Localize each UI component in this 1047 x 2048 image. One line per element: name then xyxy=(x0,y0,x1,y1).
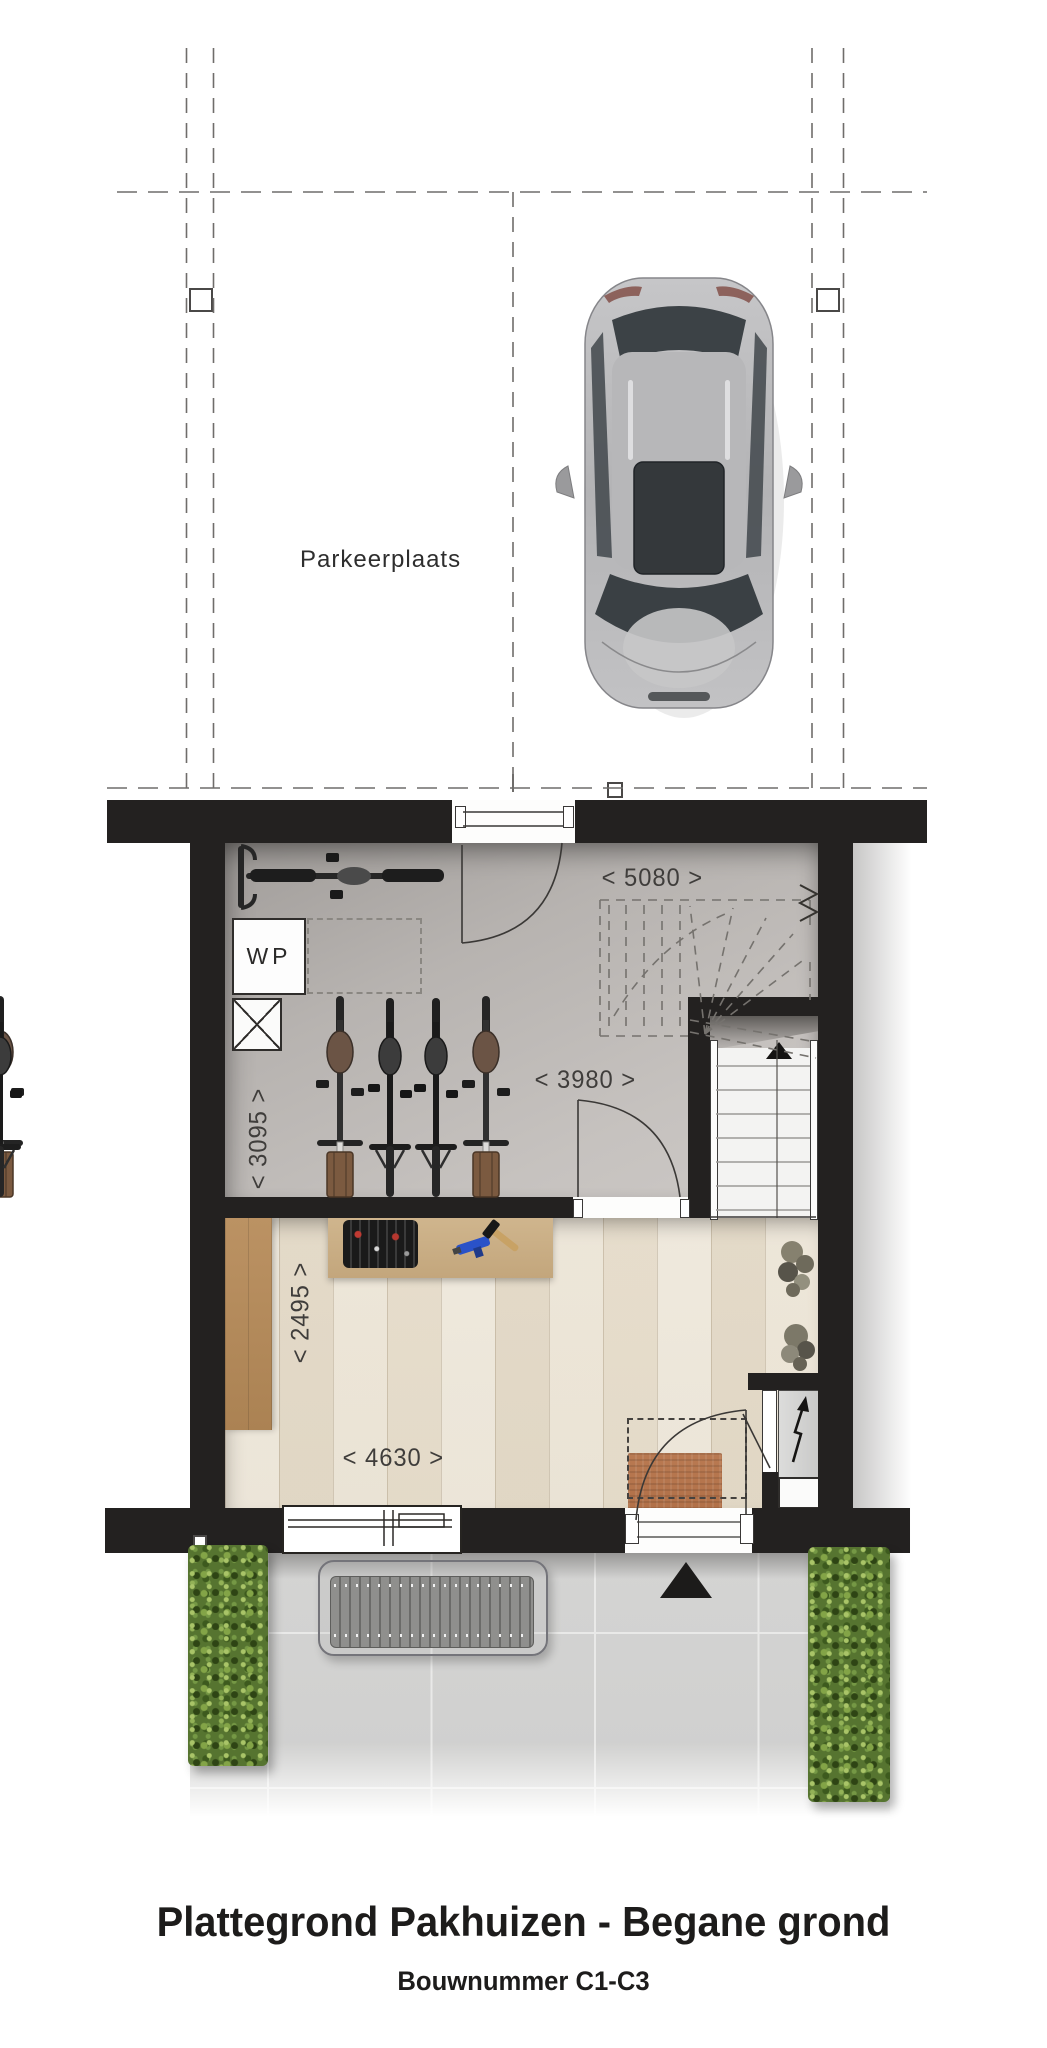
linework-overlay xyxy=(0,0,1047,2048)
stair-treads xyxy=(710,1040,816,1218)
stair-break-mark xyxy=(800,885,817,921)
dim-workshop-bottom: < 4630 > xyxy=(343,1444,444,1473)
inner-door-swing xyxy=(578,1100,680,1197)
upper-stair-dashed xyxy=(600,900,816,1058)
plan-subtitle: Bouwnummer C1-C3 xyxy=(26,1966,1021,1997)
electric-meter-icon xyxy=(793,1396,809,1462)
threshold-lines xyxy=(637,1522,740,1537)
garage-door-swing xyxy=(462,812,564,943)
dim-garage-side: < 3095 > xyxy=(245,1079,274,1199)
plan-title: Plattegrond Pakhuizen - Begane grond xyxy=(26,1898,1021,1946)
parking-label: Parkeerplaats xyxy=(300,546,461,574)
plant-decor xyxy=(778,1241,815,1371)
bike-horizontal xyxy=(238,846,444,908)
car-top-view xyxy=(556,278,802,718)
floorplan-page: WP xyxy=(0,0,1047,2048)
front-door-swing xyxy=(636,1410,770,1520)
dim-workshop-side: < 2495 > xyxy=(287,1252,316,1374)
dim-garage-inner: < 3980 > xyxy=(535,1066,636,1095)
window-mullions xyxy=(288,1510,452,1546)
dim-garage-top: < 5080 > xyxy=(602,864,703,893)
parking-lines xyxy=(107,48,927,798)
